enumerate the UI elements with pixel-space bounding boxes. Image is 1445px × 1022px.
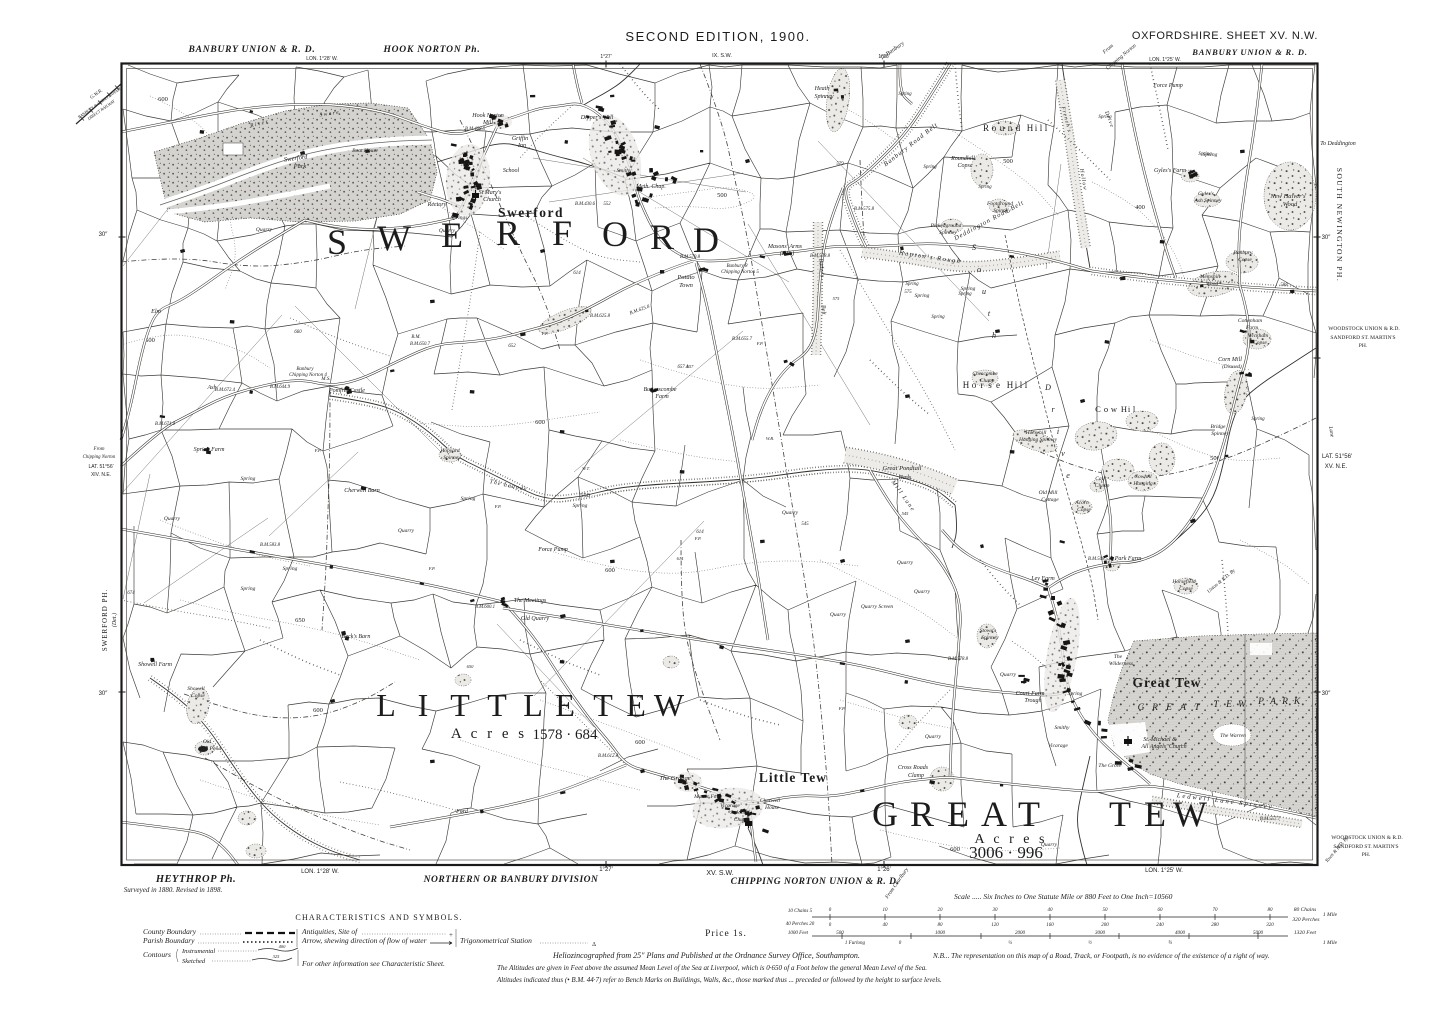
svg-text:Trigonometrical Station: Trigonometrical Station — [460, 936, 532, 945]
svg-text:Spring: Spring — [573, 503, 588, 509]
svg-text:B.M.600.1: B.M.600.1 — [475, 605, 495, 610]
svg-text:Banbury: Banbury — [1234, 250, 1254, 256]
svg-text:Clamp: Clamp — [908, 773, 924, 779]
svg-text:579: 579 — [836, 162, 844, 167]
svg-text:OXFORDSHIRE. SHEET XV. N.W.: OXFORDSHIRE. SHEET XV. N.W. — [1132, 30, 1318, 42]
svg-text:Spring: Spring — [931, 315, 945, 320]
svg-text:R: R — [983, 123, 989, 133]
svg-text:Chescombe: Chescombe — [972, 371, 998, 377]
svg-text:320: 320 — [1266, 923, 1274, 928]
svg-text:F.P.: F.P. — [636, 694, 644, 699]
svg-text:St. Michael &: St. Michael & — [1143, 737, 1177, 743]
svg-text:Spinney: Spinney — [981, 635, 999, 641]
svg-text:Calf: Calf — [1095, 475, 1106, 482]
svg-text:400: 400 — [1135, 204, 1145, 211]
svg-text:LAT. 51°56′: LAT. 51°56′ — [1322, 454, 1353, 460]
svg-text:u: u — [1000, 123, 1005, 133]
svg-text:Chipping Norton: Chipping Norton — [83, 455, 116, 460]
svg-text:The Warren: The Warren — [1220, 733, 1246, 739]
svg-text:545: 545 — [902, 511, 910, 516]
svg-text:T: T — [1109, 794, 1131, 834]
svg-text:SWERFORD PH.: SWERFORD PH. — [101, 589, 109, 652]
svg-text:XIV. N.E.: XIV. N.E. — [91, 472, 111, 478]
svg-text:Spring: Spring — [923, 165, 937, 170]
svg-text:Stowe's: Stowe's — [980, 628, 996, 634]
svg-text:Griffin: Griffin — [512, 135, 528, 142]
svg-text:R: R — [1151, 703, 1158, 713]
svg-text:614: 614 — [677, 556, 685, 561]
svg-text:(P.H.): (P.H.) — [780, 250, 794, 257]
svg-text:Meth. Chap.: Meth. Chap. — [635, 184, 666, 190]
svg-text:200: 200 — [1101, 923, 1109, 928]
svg-text:500: 500 — [836, 931, 844, 936]
svg-text:Old Quarry: Old Quarry — [521, 616, 550, 622]
svg-text:1000 Feet: 1000 Feet — [788, 931, 809, 936]
svg-text:R: R — [1281, 697, 1288, 707]
svg-text:10: 10 — [883, 908, 889, 913]
svg-text:B.M.655.7: B.M.655.7 — [732, 337, 753, 342]
svg-text:652: 652 — [508, 344, 516, 349]
svg-text:Spring: Spring — [958, 292, 972, 297]
svg-text:¾: ¾ — [1168, 941, 1172, 946]
svg-text:T: T — [1194, 703, 1200, 713]
svg-text:N.B... The representation on t: N.B... The representation on this map of… — [932, 952, 1270, 960]
svg-text:Copse: Copse — [958, 163, 973, 169]
svg-text:All Angels' Church: All Angels' Church — [1140, 744, 1186, 750]
svg-text:Great Pondtail: Great Pondtail — [883, 465, 922, 472]
svg-text:From: From — [93, 447, 105, 452]
svg-text:S: S — [972, 243, 976, 252]
svg-text:657 Δ: 657 Δ — [677, 365, 688, 370]
svg-text:Heath: Heath — [814, 86, 830, 92]
svg-text:G: G — [872, 794, 898, 834]
svg-text:5000: 5000 — [1253, 931, 1264, 936]
svg-text:BANBURY UNION & R. D.: BANBURY UNION & R. D. — [1191, 47, 1308, 57]
svg-text:B.M.625.8: B.M.625.8 — [590, 314, 611, 319]
svg-text:Mill Pond: Mill Pond — [198, 746, 221, 752]
svg-text:B.M.575.8: B.M.575.8 — [854, 207, 875, 212]
svg-text:H: H — [1121, 404, 1127, 414]
svg-text:PH.: PH. — [1359, 343, 1368, 349]
svg-text:Cherwell: Cherwell — [760, 798, 781, 804]
svg-text:C: C — [1095, 404, 1101, 414]
svg-text:Δ: Δ — [592, 942, 596, 948]
svg-text:552: 552 — [603, 202, 611, 207]
svg-text:Old: Old — [203, 739, 212, 745]
svg-text:B.M.650.7: B.M.650.7 — [410, 342, 431, 347]
svg-text:325: 325 — [273, 954, 281, 959]
svg-text:Copse: Copse — [191, 693, 205, 699]
svg-text:Horsefield: Horsefield — [1171, 578, 1195, 585]
svg-text:CHARACTERISTICS AND SYMBOLS.: CHARACTERISTICS AND SYMBOLS. — [295, 913, 462, 922]
svg-text:Swerford: Swerford — [498, 205, 564, 220]
svg-text:Quarry: Quarry — [925, 734, 942, 740]
svg-text:1°26′: 1°26′ — [877, 867, 891, 873]
svg-text:280: 280 — [1211, 923, 1219, 928]
svg-text:½: ½ — [1088, 941, 1092, 946]
svg-text:Copse: Copse — [1077, 507, 1091, 513]
svg-text:H: H — [1007, 380, 1014, 390]
svg-text:1578 · 684: 1578 · 684 — [533, 727, 598, 743]
svg-text:Hopyard: Hopyard — [439, 448, 460, 454]
svg-text:PH.: PH. — [1362, 852, 1371, 858]
svg-text:120: 120 — [991, 923, 999, 928]
svg-text:W.T.: W.T. — [582, 466, 590, 471]
svg-text:B.M.579.8: B.M.579.8 — [680, 255, 701, 260]
svg-text:Sketched: Sketched — [182, 958, 206, 965]
svg-text:LON. 1°28′ W.: LON. 1°28′ W. — [301, 869, 339, 875]
svg-text:NORTHERN OR BANBURY DIVISION: NORTHERN OR BANBURY DIVISION — [423, 875, 599, 885]
svg-text:T: T — [1018, 794, 1040, 834]
svg-text:Wood: Wood — [1283, 201, 1298, 208]
svg-text:40 Perches 20: 40 Perches 20 — [786, 922, 815, 927]
svg-text:Potato: Potato — [676, 274, 695, 281]
svg-text:Spring: Spring — [978, 185, 992, 190]
svg-text:600: 600 — [635, 739, 645, 746]
svg-text:Gyles's: Gyles's — [1198, 191, 1214, 197]
svg-text:For other information see Char: For other information see Characteristic… — [301, 959, 445, 968]
svg-text:674: 674 — [127, 591, 135, 596]
svg-text:LON. 1°25′ W.: LON. 1°25′ W. — [1145, 868, 1183, 874]
svg-text:K: K — [1293, 697, 1301, 707]
svg-text:Quarry: Quarry — [1041, 842, 1058, 848]
svg-text:Cottage: Cottage — [1041, 497, 1059, 503]
svg-text:50: 50 — [1103, 908, 1109, 913]
svg-text:Farm: Farm — [1245, 325, 1258, 331]
svg-text:F.P.: F.P. — [838, 706, 846, 711]
svg-text:Banbury 8: Banbury 8 — [727, 264, 748, 269]
svg-text:Force Pump: Force Pump — [1152, 83, 1183, 89]
svg-text:Cross Roads: Cross Roads — [898, 765, 929, 771]
svg-text:500: 500 — [1003, 158, 1013, 165]
svg-text:Spinney: Spinney — [443, 455, 461, 461]
svg-text:IX. S.W.: IX. S.W. — [712, 53, 732, 59]
svg-text:St John's: St John's — [730, 810, 750, 816]
svg-text:Little Tew: Little Tew — [759, 770, 827, 785]
svg-text:Heliozincographed from 25″ Pla: Heliozincographed from 25″ Plans and Pub… — [552, 951, 860, 960]
svg-text:Dipper's Well: Dipper's Well — [580, 115, 614, 121]
svg-text:LAT. 51°56′: LAT. 51°56′ — [88, 464, 113, 470]
svg-text:u: u — [982, 287, 986, 296]
svg-text:240: 240 — [1156, 923, 1164, 928]
svg-text:Parish Boundary: Parish Boundary — [142, 936, 195, 945]
svg-text:Hook Norton: Hook Norton — [471, 113, 504, 119]
svg-text:School: School — [503, 168, 520, 174]
svg-text:B.M.578.8: B.M.578.8 — [948, 657, 969, 662]
svg-text:Great Tew: Great Tew — [1132, 675, 1201, 690]
svg-text:B.M.578.8: B.M.578.8 — [810, 254, 831, 259]
svg-text:The: The — [1114, 654, 1123, 660]
svg-text:d: d — [1016, 123, 1021, 133]
svg-text:Old Mill: Old Mill — [1039, 490, 1058, 496]
svg-text:Price 1s.: Price 1s. — [705, 929, 747, 939]
svg-text:B.M.612.4: B.M.612.4 — [598, 754, 619, 759]
svg-text:B.M.: B.M. — [411, 335, 420, 340]
svg-text:80 Chains: 80 Chains — [1294, 907, 1316, 913]
svg-text:HEYTHROP Ph.: HEYTHROP Ph. — [155, 874, 236, 885]
svg-text:Cowhill: Cowhill — [1134, 474, 1152, 480]
svg-text:70: 70 — [1213, 908, 1219, 913]
svg-text:Copse: Copse — [1253, 340, 1267, 346]
svg-text:T: T — [487, 687, 507, 723]
svg-text:W: W — [654, 687, 685, 723]
svg-text:i: i — [1057, 427, 1059, 436]
svg-text:614: 614 — [573, 271, 581, 276]
svg-text:B.M.468.5: B.M.468.5 — [465, 127, 486, 132]
svg-text:600: 600 — [535, 419, 545, 426]
svg-text:v: v — [1061, 449, 1065, 458]
svg-text:Rectory: Rectory — [427, 202, 447, 208]
svg-text:Manor Fm: Manor Fm — [693, 794, 718, 800]
svg-text:Ley Farm: Ley Farm — [1030, 576, 1055, 582]
svg-text:New Halver's: New Halver's — [1269, 193, 1306, 200]
svg-text:+: + — [449, 931, 453, 939]
svg-text:Spinney: Spinney — [815, 94, 834, 100]
svg-text:(Disused): (Disused) — [1222, 365, 1242, 370]
svg-text:Ford: Ford — [455, 809, 469, 815]
svg-text:F.P.: F.P. — [694, 536, 702, 541]
svg-text:R: R — [910, 794, 934, 834]
svg-text:20: 20 — [938, 908, 944, 913]
svg-text:Spring Farm: Spring Farm — [194, 447, 226, 453]
svg-text:Smithy: Smithy — [1055, 725, 1071, 731]
svg-text:Clump: Clump — [1095, 483, 1110, 489]
svg-text:3006 · 996: 3006 · 996 — [969, 843, 1043, 862]
svg-text:D: D — [693, 220, 719, 260]
svg-text:Quarry: Quarry — [1000, 672, 1017, 678]
svg-text:w: w — [1111, 404, 1118, 414]
svg-text:B.M.557.7: B.M.557.7 — [1260, 817, 1281, 822]
svg-text:e: e — [1066, 471, 1070, 480]
svg-text:SOUTH NEWINGTON PH.: SOUTH NEWINGTON PH. — [1335, 168, 1344, 282]
svg-text:30″: 30″ — [1322, 235, 1332, 241]
svg-text:1320 Feet: 1320 Feet — [1294, 930, 1317, 936]
svg-text:P: P — [1257, 697, 1264, 707]
svg-text:Bridge: Bridge — [1211, 424, 1227, 430]
svg-text:Vicarage: Vicarage — [1048, 743, 1068, 749]
svg-text:Mill: Mill — [482, 120, 493, 126]
svg-text:Banbury: Banbury — [296, 367, 314, 372]
svg-text:LON. 1°25′ W.: LON. 1°25′ W. — [1149, 57, 1181, 63]
svg-text:500: 500 — [717, 192, 727, 199]
svg-text:Belt: Belt — [820, 305, 827, 315]
svg-text:H: H — [963, 380, 970, 390]
svg-text:Quarry: Quarry — [164, 516, 181, 522]
svg-text:Clump: Clump — [980, 378, 995, 384]
svg-text:650: 650 — [467, 664, 475, 669]
svg-text:Ash Spinney: Ash Spinney — [1193, 198, 1222, 204]
svg-text:Spring: Spring — [915, 293, 930, 299]
svg-text:400: 400 — [279, 944, 287, 949]
svg-text:W: W — [1238, 700, 1247, 710]
svg-text:W: W — [377, 218, 411, 258]
svg-text:Memshill: Memshill — [1199, 274, 1221, 280]
svg-text:A c r e s: A c r e s — [451, 726, 527, 742]
svg-text:1000: 1000 — [935, 931, 946, 936]
svg-text:(Det.): (Det.) — [111, 613, 118, 627]
svg-text:E: E — [441, 215, 463, 255]
svg-text:XV. N.E.: XV. N.E. — [1325, 464, 1348, 470]
svg-text:Spring: Spring — [1251, 417, 1265, 422]
svg-text:Spring: Spring — [905, 282, 919, 287]
svg-text:Farm: Farm — [654, 394, 669, 400]
svg-text:Surveyed in 1880. Revised in: Surveyed in 1880. Revised in 1898. — [124, 886, 223, 894]
svg-text:1 Mile: 1 Mile — [1323, 912, 1338, 918]
svg-text:660: 660 — [294, 330, 302, 335]
svg-text:D: D — [1044, 383, 1051, 392]
svg-text:Park Farm: Park Farm — [1114, 556, 1142, 562]
svg-text:B.M.508.5: B.M.508.5 — [1088, 557, 1109, 562]
svg-text:A: A — [981, 794, 1007, 834]
svg-text:Hanging...: Hanging... — [1132, 481, 1156, 487]
svg-text:o: o — [972, 380, 977, 390]
svg-text:o: o — [992, 123, 997, 133]
svg-text:Elm: Elm — [150, 309, 161, 315]
svg-text:Spring: Spring — [283, 566, 298, 572]
svg-text:2000: 2000 — [1015, 931, 1026, 936]
svg-text:Acorn: Acorn — [1074, 500, 1089, 506]
svg-text:Gyles's Farm: Gyles's Farm — [1154, 168, 1187, 174]
svg-text:Quarry: Quarry — [256, 227, 273, 233]
svg-text:Beds: Beds — [899, 474, 912, 481]
svg-text:Spinney: Spinney — [1211, 431, 1229, 437]
svg-text:WOODSTOCK UNION & R.D.: WOODSTOCK UNION & R.D. — [1331, 835, 1403, 841]
svg-text:30: 30 — [993, 908, 999, 913]
svg-text:BANBURY UNION & R. D.: BANBURY UNION & R. D. — [187, 45, 315, 55]
svg-text:G: G — [1138, 703, 1145, 713]
svg-text:T: T — [1213, 700, 1219, 710]
svg-text:F.P.: F.P. — [756, 341, 764, 346]
svg-text:Butterscombe: Butterscombe — [644, 387, 677, 393]
svg-text:320 Perches: 320 Perches — [1291, 917, 1319, 923]
svg-text:CHIPPING NORTON UNION & R. D.: CHIPPING NORTON UNION & R. D. — [731, 877, 900, 887]
svg-text:Vicarage: Vicarage — [720, 803, 740, 809]
svg-text:e: e — [996, 380, 1000, 390]
svg-text:Quarry: Quarry — [439, 228, 456, 234]
svg-text:B.M.644.9: B.M.644.9 — [270, 385, 291, 390]
svg-text:o: o — [977, 265, 981, 274]
svg-text:Springs: Springs — [451, 215, 468, 221]
svg-text:3000: 3000 — [1095, 931, 1106, 936]
svg-text:Horsehill: Horsehill — [1025, 430, 1047, 436]
svg-text:Town: Town — [679, 282, 693, 289]
svg-text:XV. S.W.: XV. S.W. — [706, 870, 733, 877]
svg-text:S: S — [327, 222, 347, 262]
svg-text:SANDFORD ST. MARTIN'S: SANDFORD ST. MARTIN'S — [1330, 335, 1395, 341]
svg-text:h: h — [992, 331, 996, 340]
svg-text:Altitudes indicated thus (• B.: Altitudes indicated thus (• B.M. 44·7) r… — [496, 976, 942, 984]
svg-text:Quarry: Quarry — [897, 560, 914, 566]
svg-text:40: 40 — [883, 923, 889, 928]
svg-text:Cottenham: Cottenham — [1238, 318, 1262, 324]
svg-text:Instrumental: Instrumental — [181, 948, 215, 955]
svg-text:Quarry: Quarry — [398, 528, 415, 534]
svg-text:588: 588 — [1280, 283, 1288, 288]
svg-text:L: L — [376, 687, 396, 723]
svg-text:600: 600 — [313, 707, 323, 714]
svg-text:575: 575 — [833, 296, 841, 301]
svg-text:H: H — [1027, 123, 1034, 133]
svg-text:Showell Farm: Showell Farm — [138, 662, 172, 668]
svg-text:E: E — [1225, 700, 1232, 710]
svg-text:Roundhill: Roundhill — [950, 156, 975, 162]
svg-text:Spring: Spring — [1198, 152, 1212, 157]
svg-text:600: 600 — [605, 567, 615, 574]
svg-text:Force Pump: Force Pump — [537, 547, 568, 553]
svg-text:E: E — [555, 687, 575, 723]
svg-text:Copse: Copse — [1238, 257, 1252, 263]
svg-text:WOODSTOCK UNION & R.D.: WOODSTOCK UNION & R.D. — [1328, 326, 1400, 332]
svg-text:M.S.: M.S. — [320, 377, 330, 382]
svg-text:B.M.672.4: B.M.672.4 — [215, 388, 236, 393]
svg-text:Park: Park — [293, 163, 307, 170]
svg-text:614: 614 — [696, 530, 704, 535]
svg-text:Corn Mill: Corn Mill — [1218, 357, 1242, 363]
svg-text:80: 80 — [938, 923, 944, 928]
svg-text:The Meetings: The Meetings — [514, 598, 547, 604]
svg-text:Hanging Spinney: Hanging Spinney — [1018, 437, 1058, 443]
svg-text:SECOND EDITION, 1900.: SECOND EDITION, 1900. — [625, 29, 810, 44]
svg-text:575: 575 — [904, 290, 912, 295]
svg-text:650: 650 — [295, 617, 305, 624]
svg-text:Beck's Barn: Beck's Barn — [342, 634, 371, 640]
svg-text:30″: 30″ — [99, 691, 109, 697]
svg-text:Copse: Copse — [1179, 586, 1193, 592]
svg-text:B.M.583.8: B.M.583.8 — [260, 543, 281, 548]
svg-text:A: A — [1179, 703, 1186, 713]
svg-text:600: 600 — [950, 846, 960, 853]
svg-text:L: L — [523, 687, 543, 723]
svg-text:Pickedground: Pickedground — [930, 223, 962, 229]
svg-text:Court Farm: Court Farm — [1016, 691, 1046, 697]
svg-text:Wickham: Wickham — [1248, 333, 1268, 339]
svg-text:R: R — [650, 217, 674, 257]
svg-text:F.P.: F.P. — [314, 448, 322, 453]
svg-text:The Altitudes are given in Fee: The Altitudes are given in Feet above th… — [497, 964, 927, 972]
svg-text:Showell: Showell — [187, 686, 205, 692]
svg-text:O: O — [602, 214, 628, 254]
svg-text:Quarry: Quarry — [782, 510, 799, 516]
svg-text:E: E — [1144, 794, 1166, 834]
svg-text:W.B.: W.B. — [766, 436, 774, 441]
svg-text:Arrow, shewing direction of fl: Arrow, shewing direction of flow of wate… — [301, 936, 427, 945]
svg-text:160: 160 — [1046, 923, 1054, 928]
svg-text:40: 40 — [1048, 908, 1054, 913]
svg-text:Spring: Spring — [898, 92, 912, 97]
svg-text:E: E — [626, 687, 646, 723]
svg-text:HOOK NORTON Ph.: HOOK NORTON Ph. — [382, 45, 480, 55]
svg-text:10 Chains 5: 10 Chains 5 — [788, 909, 813, 914]
svg-text:E: E — [1165, 703, 1172, 713]
svg-text:The Grange: The Grange — [659, 775, 690, 782]
svg-text:Spring: Spring — [241, 586, 256, 592]
svg-text:Antiquities, Site of: Antiquities, Site of — [301, 927, 358, 936]
svg-text:Wood: Wood — [1206, 281, 1219, 287]
svg-text:4000: 4000 — [1175, 931, 1186, 936]
svg-text:B.M.430.6: B.M.430.6 — [575, 202, 596, 207]
svg-text:Chipping Norton 5: Chipping Norton 5 — [721, 270, 759, 275]
svg-text:¼: ¼ — [1008, 941, 1012, 946]
svg-text:E: E — [947, 794, 969, 834]
svg-text:House: House — [764, 805, 780, 811]
svg-text:Quarry Screen: Quarry Screen — [861, 604, 894, 610]
svg-text:Church: Church — [483, 197, 501, 203]
svg-text:Inn: Inn — [517, 143, 526, 149]
svg-text:Contours: Contours — [143, 950, 171, 959]
svg-text:F.P.: F.P. — [428, 566, 436, 571]
svg-text:Scale ..... Six Inches to One: Scale ..... Six Inches to One Statute Mi… — [954, 892, 1173, 901]
svg-text:St Mary's: St Mary's — [479, 190, 502, 196]
